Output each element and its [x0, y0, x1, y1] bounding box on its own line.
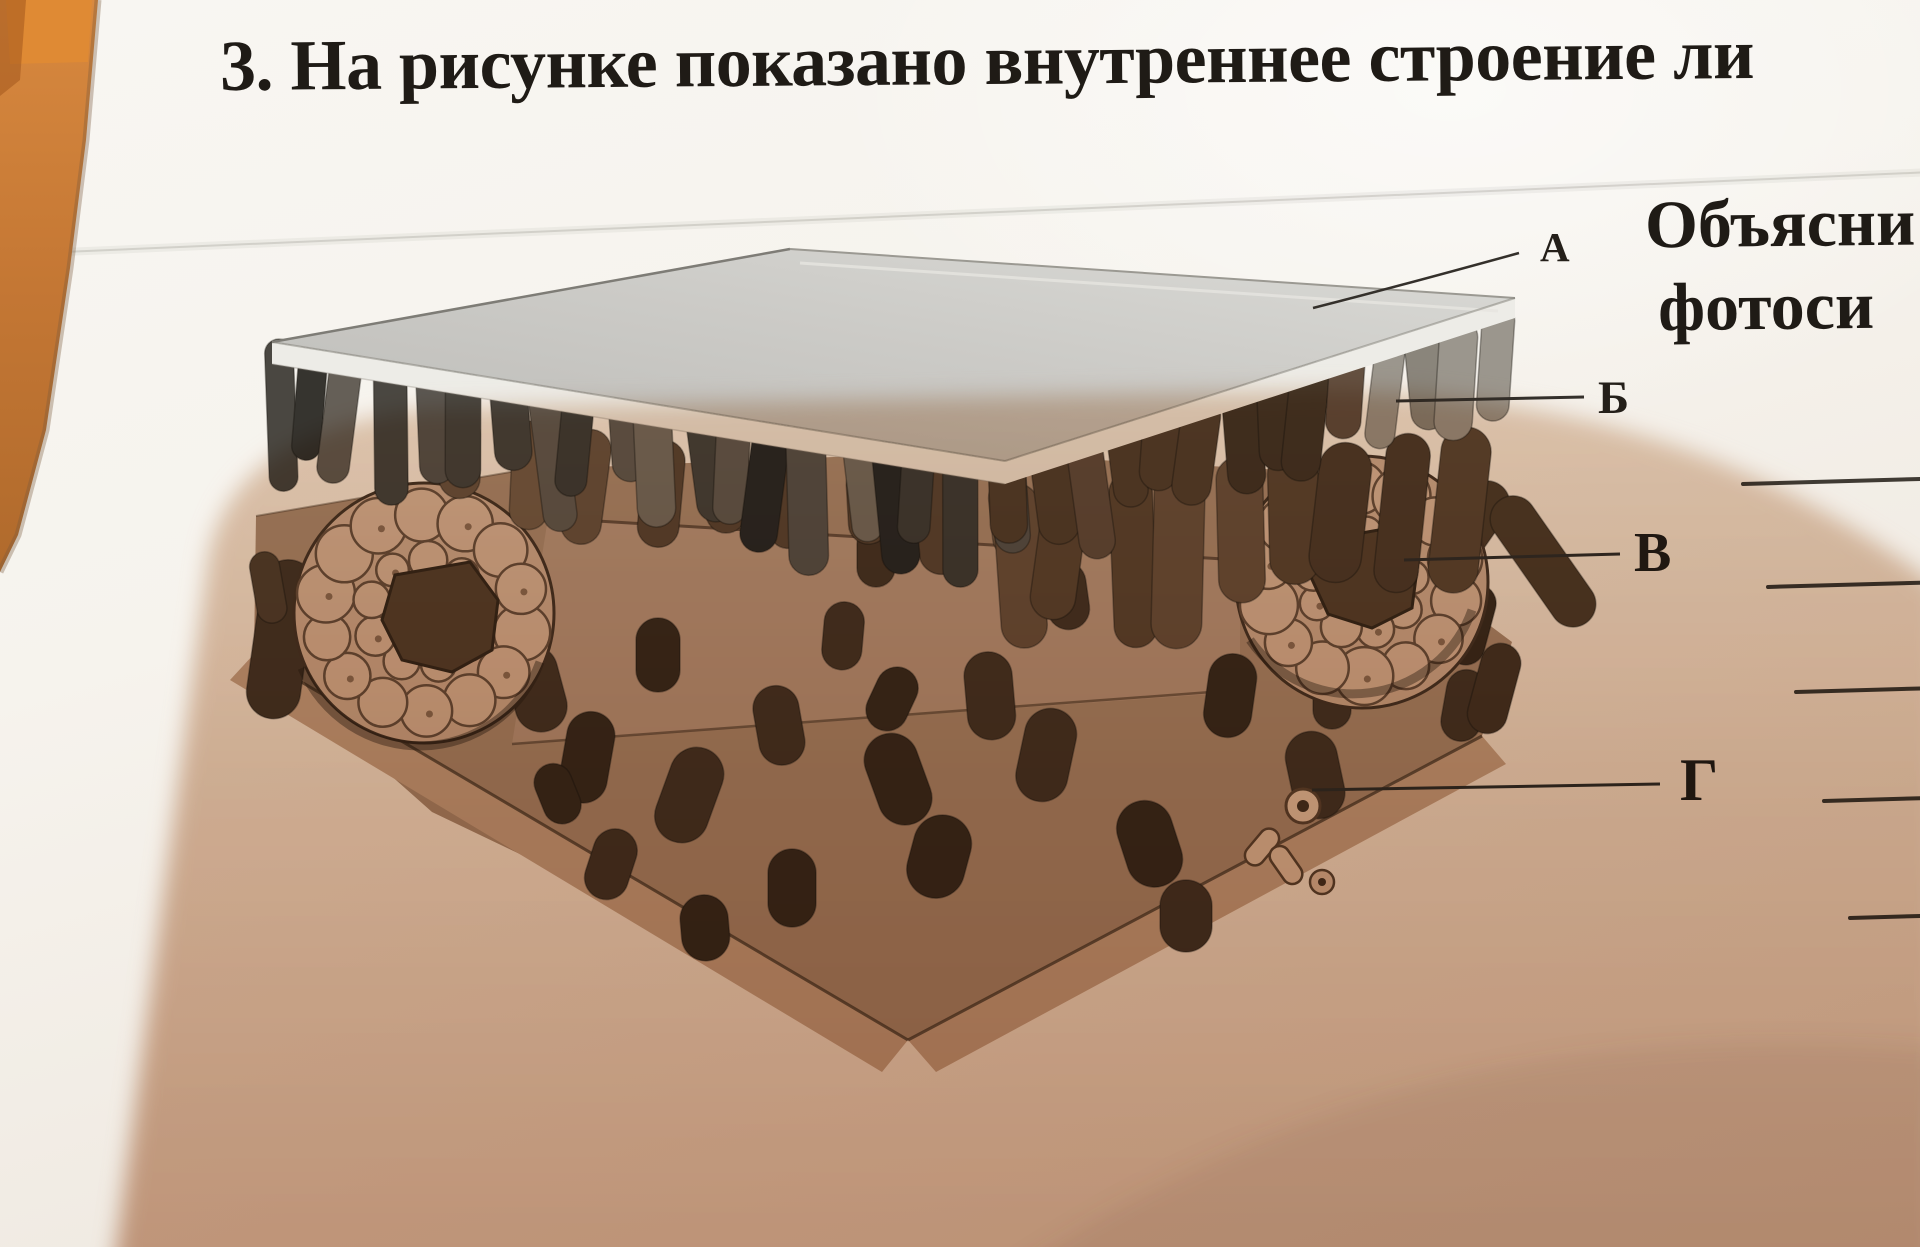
- side-text-line-1: Объясни: [1645, 188, 1916, 259]
- worksheet-photo: 3. На рисунке показано внутреннее строен…: [0, 0, 1920, 1247]
- mesophyll-blob: [962, 650, 1017, 742]
- figure-label-b: Б: [1598, 375, 1629, 422]
- mesophyll-blob: [636, 618, 680, 692]
- bundle-cell-dot: [426, 710, 433, 717]
- bundle-cell-dot: [503, 672, 510, 679]
- mesophyll-blob: [820, 600, 866, 671]
- bundle-cell-dot: [347, 675, 354, 682]
- bundle-cell-dot: [1288, 642, 1295, 649]
- bundle-cell-dot: [1364, 676, 1371, 683]
- mesophyll-blob: [1160, 880, 1212, 952]
- figure-label-a: А: [1540, 227, 1570, 268]
- side-text-line-2: фотоси: [1658, 271, 1875, 341]
- bundle-cell-dot: [375, 635, 382, 642]
- bundle-cell-dot: [1438, 638, 1445, 645]
- bundle-cell: [401, 685, 452, 736]
- bundle-cell-dot: [1375, 629, 1382, 636]
- bundle-cell-dot: [325, 593, 332, 600]
- figure-label-g: Г: [1680, 750, 1718, 810]
- figure-label-v: В: [1634, 525, 1671, 581]
- dark-tissue-piece: [1481, 487, 1605, 636]
- bundle-cell-dot: [378, 525, 385, 532]
- mesophyll-blob: [768, 849, 816, 927]
- question-title: 3. На рисунке показано внутреннее строен…: [220, 18, 1755, 102]
- bundle-core-left: [382, 562, 498, 672]
- bundle-cell: [496, 564, 546, 614]
- leaf-diagram-figure: [0, 0, 1920, 1247]
- bundle-cell-dot: [465, 523, 472, 530]
- bundle-cell-dot: [520, 588, 527, 595]
